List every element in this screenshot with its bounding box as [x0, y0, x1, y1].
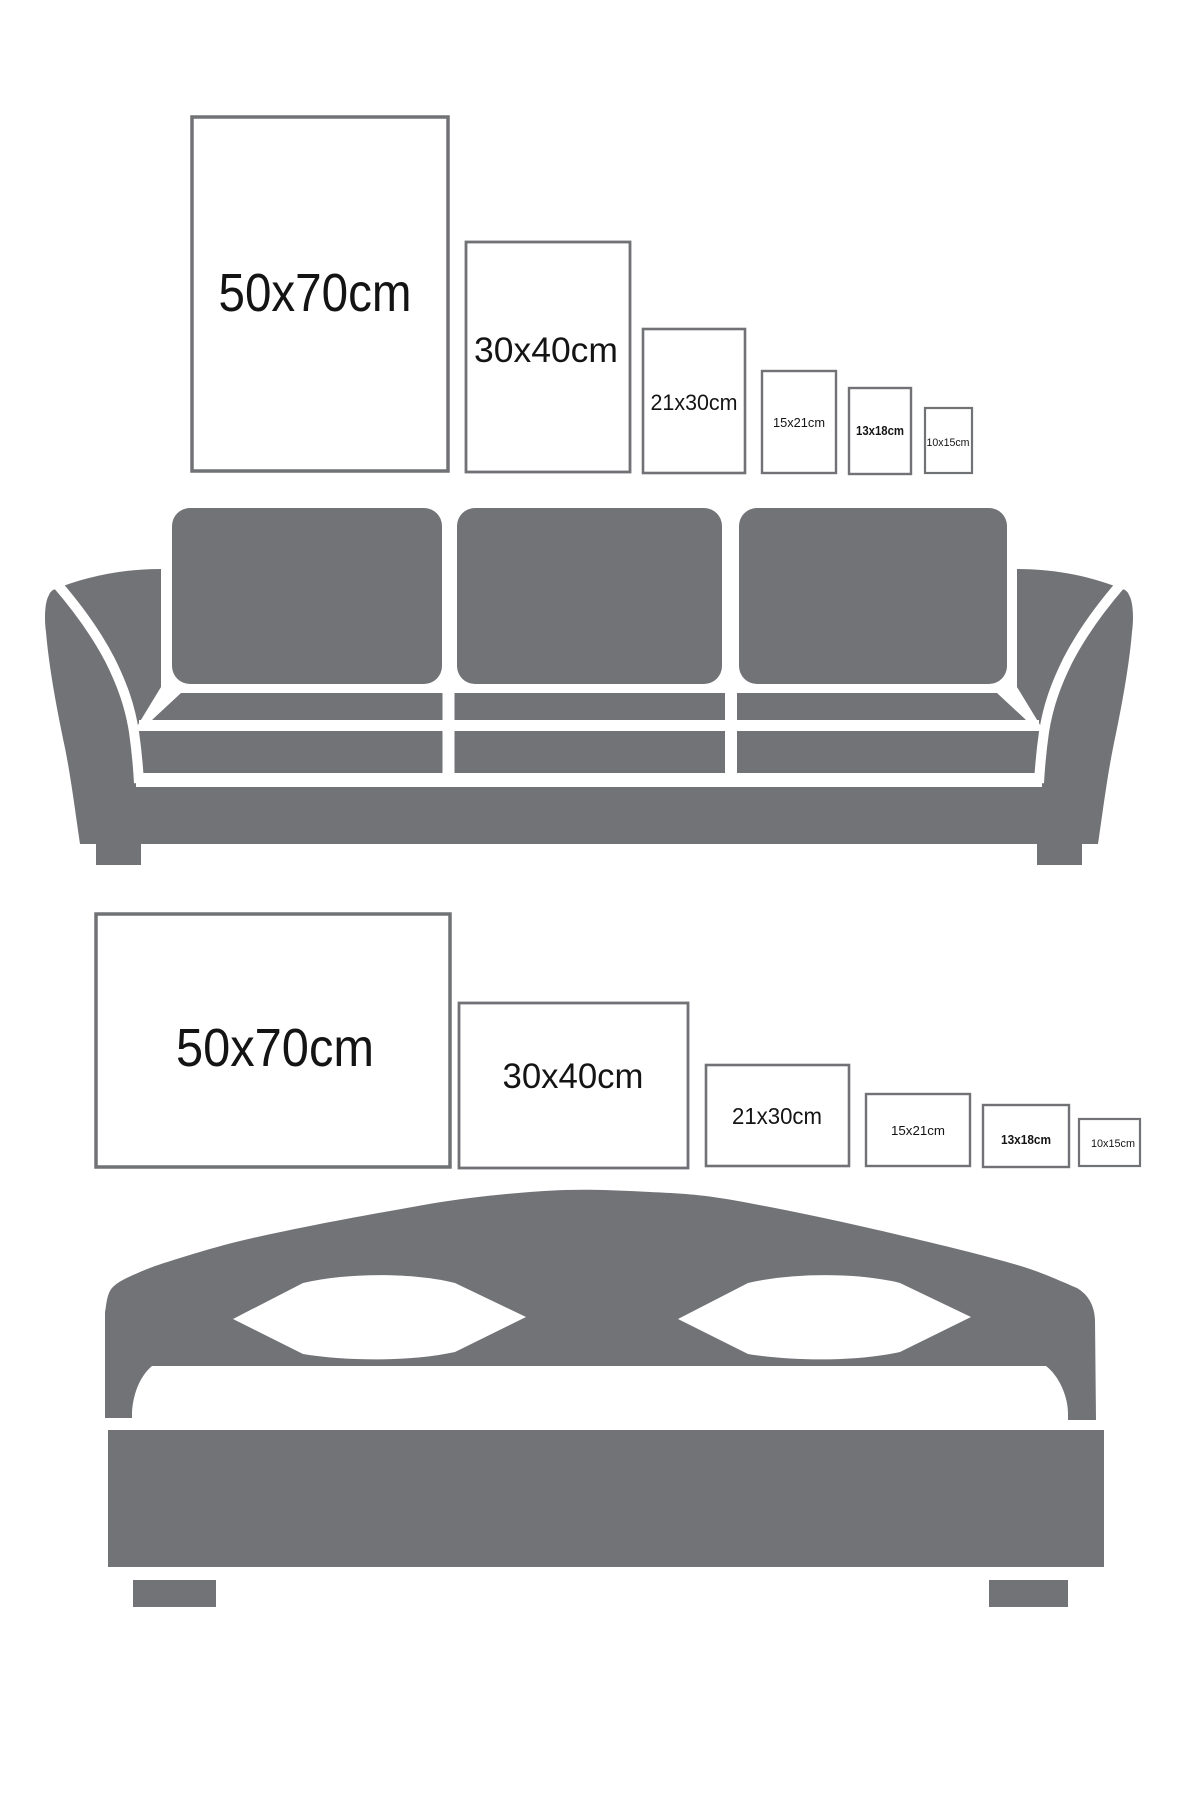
svg-text:15x21cm: 15x21cm: [773, 415, 825, 430]
svg-text:10x15cm: 10x15cm: [1091, 1138, 1135, 1150]
svg-text:10x15cm: 10x15cm: [927, 437, 970, 449]
svg-text:30x40cm: 30x40cm: [474, 331, 618, 370]
svg-text:21x30cm: 21x30cm: [732, 1103, 822, 1129]
svg-text:30x40cm: 30x40cm: [503, 1057, 644, 1096]
svg-text:50x70cm: 50x70cm: [176, 1018, 374, 1078]
svg-text:13x18cm: 13x18cm: [1001, 1132, 1051, 1147]
svg-text:21x30cm: 21x30cm: [651, 390, 738, 415]
svg-text:50x70cm: 50x70cm: [219, 263, 412, 323]
svg-text:13x18cm: 13x18cm: [856, 423, 904, 438]
svg-text:15x21cm: 15x21cm: [891, 1123, 945, 1138]
